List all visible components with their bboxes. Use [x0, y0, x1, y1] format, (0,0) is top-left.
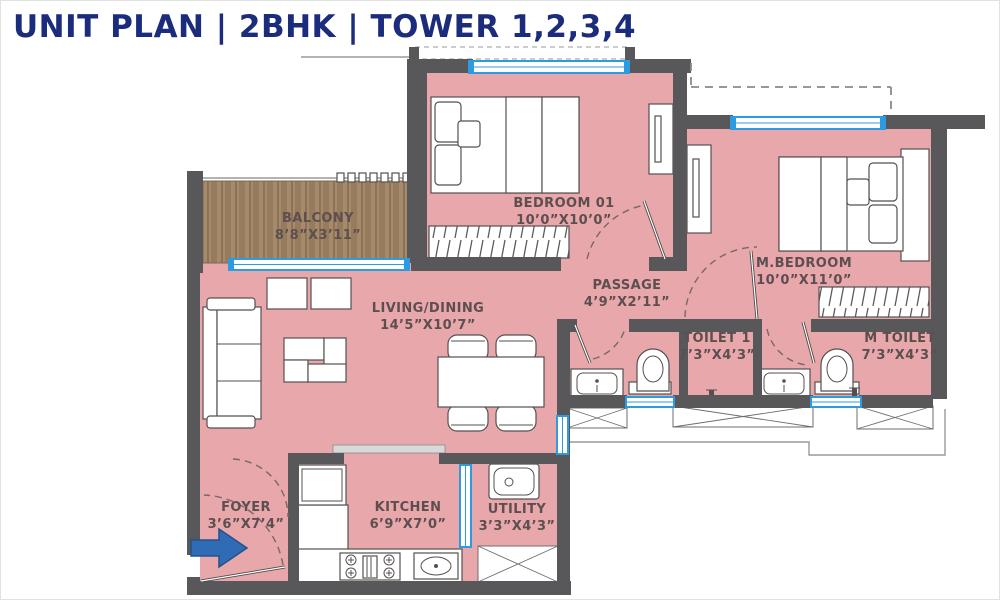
bed-01	[431, 97, 579, 193]
mtoilet-dims: 7’3”X4’3”	[862, 348, 939, 363]
mtoilet-vent-window	[811, 397, 861, 407]
foyer-dims: 3’6”X7’4”	[208, 517, 285, 532]
stove	[340, 553, 400, 580]
bedroom01-dims: 10’0”X10’0”	[516, 213, 612, 228]
sofa	[203, 298, 261, 428]
toilet1-label: TOILET 1	[683, 331, 751, 346]
toilet1-vent-window	[626, 397, 674, 407]
coffee-table	[284, 338, 346, 382]
kitchen-label: KITCHEN	[375, 500, 442, 515]
wardrobe-mbedroom	[819, 287, 929, 317]
toilet1-dims: 7’3”X4’3”	[679, 348, 756, 363]
utility-dims: 3’3”X4’3”	[479, 519, 556, 534]
mbedroom-dims: 10’0”X11’0”	[756, 273, 852, 288]
dining-table	[438, 357, 544, 407]
side-table-1	[267, 278, 307, 309]
balcony-railing	[337, 173, 409, 182]
kitchen-sink	[414, 553, 458, 579]
page-title: UNIT PLAN | 2BHK | TOWER 1,2,3,4	[13, 9, 636, 45]
balcony-dims: 8’8”X3’11”	[275, 228, 361, 243]
living-dining-dims: 14’5”X10’7”	[380, 318, 476, 333]
washing-machine	[489, 464, 539, 499]
living-dining-label: LIVING/DINING	[372, 301, 484, 316]
top-duct-band	[409, 47, 635, 60]
basin-toilet1	[571, 369, 623, 397]
kitchen-dims: 6’9”X7’0”	[370, 517, 447, 532]
side-table-2	[311, 278, 351, 309]
kitchen-counter-top	[333, 445, 445, 453]
open-area-dashed-boundary	[691, 63, 891, 113]
basin-mtoilet	[758, 369, 810, 397]
tv-unit-mbedroom	[687, 145, 711, 233]
floor-plan-canvas: UNIT PLAN | 2BHK | TOWER 1,2,3,4	[1, 1, 1000, 600]
tv-unit-bedroom01	[649, 104, 673, 174]
mbedroom-label: M.BEDROOM	[756, 256, 852, 271]
balcony-window	[229, 258, 409, 271]
wardrobe-bedroom01	[429, 226, 569, 258]
utility-window	[460, 465, 471, 547]
foyer-label: FOYER	[221, 500, 271, 515]
unit-plan-page: UNIT PLAN | 2BHK | TOWER 1,2,3,4	[0, 0, 1000, 600]
bedroom01-label: BEDROOM 01	[513, 196, 614, 211]
bed-master	[779, 149, 929, 261]
balcony-label: BALCONY	[282, 211, 354, 226]
utility-label: UTILITY	[488, 502, 547, 517]
fridge	[298, 465, 346, 505]
mbedroom-window	[731, 116, 885, 130]
passage-label: PASSAGE	[593, 278, 662, 293]
mtoilet-label: M TOILET	[864, 331, 935, 346]
passage-side-window	[557, 416, 568, 454]
passage-dims: 4’9”X2’11”	[584, 295, 670, 310]
bedroom01-window	[469, 60, 629, 74]
